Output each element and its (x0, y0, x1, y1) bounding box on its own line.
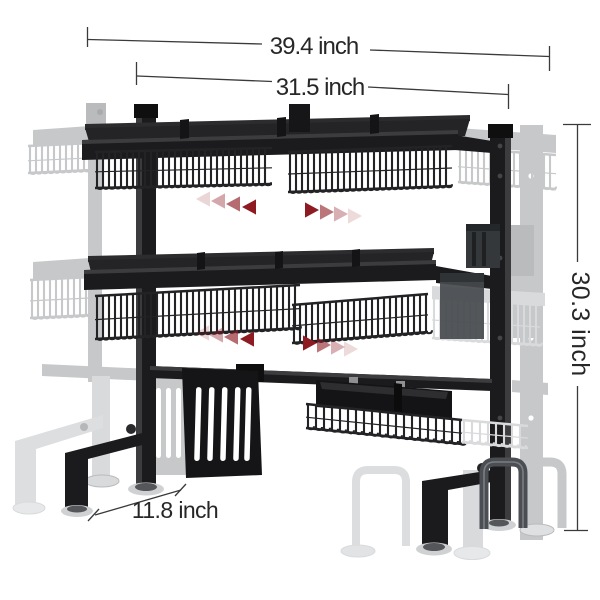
svg-text:31.5 inch: 31.5 inch (276, 74, 364, 101)
svg-text:30.3 inch: 30.3 inch (566, 271, 594, 376)
svg-text:11.8 inch: 11.8 inch (132, 497, 218, 523)
svg-text:39.4 inch: 39.4 inch (270, 33, 358, 60)
